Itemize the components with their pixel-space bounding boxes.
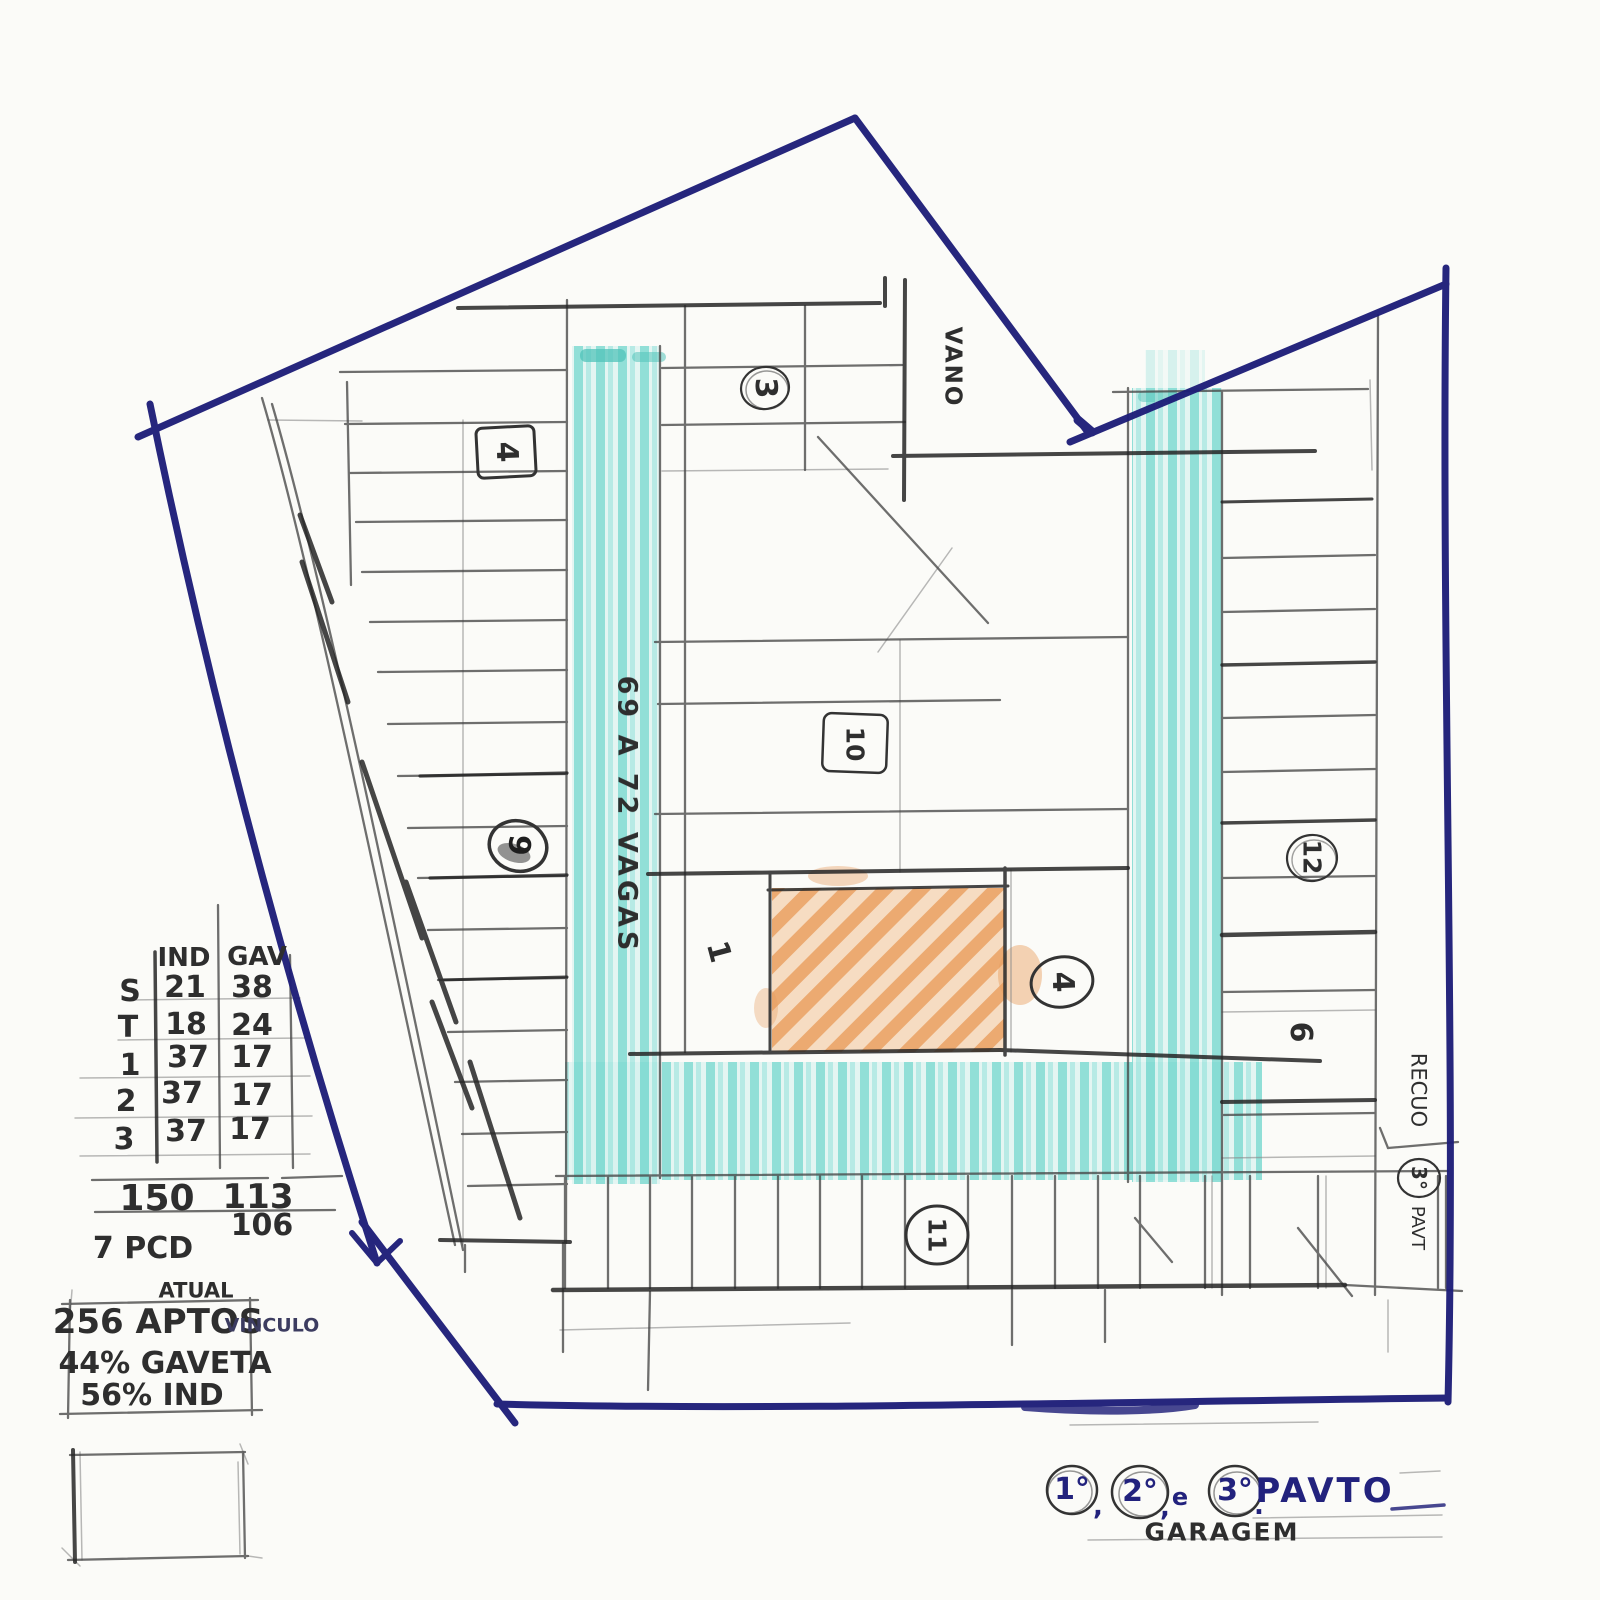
cell-ind: 37 <box>165 1117 207 1147</box>
title-subtitle: GARAGEM <box>1145 1520 1300 1545</box>
title-label: PAVTO <box>1255 1474 1394 1508</box>
core-highlight <box>754 866 1042 1052</box>
zone-marker-9: 9 <box>502 833 534 856</box>
cell-ind: 21 <box>164 973 206 1003</box>
void-label: VANO <box>941 327 964 408</box>
row-label: 1 <box>120 1051 141 1081</box>
row-label: 3 <box>114 1125 135 1155</box>
zone-marker-12: 12 <box>1300 840 1325 875</box>
summary-gaveta: 44% GAVETA <box>58 1349 271 1379</box>
cell-ind: 18 <box>165 1010 207 1040</box>
zone-marker-4-circle: 4 <box>1047 971 1078 993</box>
summary-apts-note: VINCULO <box>225 1317 320 1336</box>
garage-plan-sketch: IND GAV S 21 38 T 18 24 1 37 17 2 37 17 … <box>0 0 1600 1600</box>
cell-gav: 17 <box>231 1043 273 1073</box>
cell-gav: 17 <box>229 1115 271 1145</box>
title-floor-1: 1° <box>1054 1475 1090 1505</box>
zone-marker-10: 10 <box>843 727 868 762</box>
pcd-note: 7 PCD <box>93 1234 193 1264</box>
drive-lane-highlights <box>565 346 1262 1184</box>
lane-capacity-label: 69 A 72 VAGAS <box>614 676 641 955</box>
cell-ind: 37 <box>167 1043 209 1073</box>
zone-marker-6: 6 <box>1285 1022 1315 1043</box>
summary-ind: 56% IND <box>80 1381 223 1411</box>
row-label: 2 <box>116 1087 137 1117</box>
title-conjunction: e <box>1172 1485 1188 1509</box>
zone-marker-4-box: 4 <box>491 441 522 463</box>
title-floor-2: 2° <box>1122 1477 1158 1507</box>
title-sep-1: , <box>1093 1494 1103 1520</box>
setback-label: RECUO <box>1408 1053 1429 1127</box>
row-label: S <box>119 977 141 1007</box>
setback-floor: 3° <box>1409 1166 1429 1190</box>
zone-marker-11: 11 <box>925 1218 950 1253</box>
table-header-gav: GAV <box>227 944 287 970</box>
total-gav-alt: 106 <box>231 1211 294 1241</box>
summary-header: ATUAL <box>159 1281 234 1302</box>
cell-gav: 24 <box>231 1011 273 1041</box>
row-label: T <box>118 1013 138 1043</box>
cell-gav: 38 <box>231 973 273 1003</box>
setback-floor-suffix: PAVT <box>1408 1206 1426 1250</box>
cell-gav: 17 <box>231 1081 273 1111</box>
zone-marker-3: 3 <box>750 377 781 399</box>
total-ind: 150 <box>119 1181 194 1217</box>
table-header-ind: IND <box>157 945 210 971</box>
title-floor-3: 3° <box>1217 1476 1253 1506</box>
cell-ind: 37 <box>161 1079 203 1109</box>
